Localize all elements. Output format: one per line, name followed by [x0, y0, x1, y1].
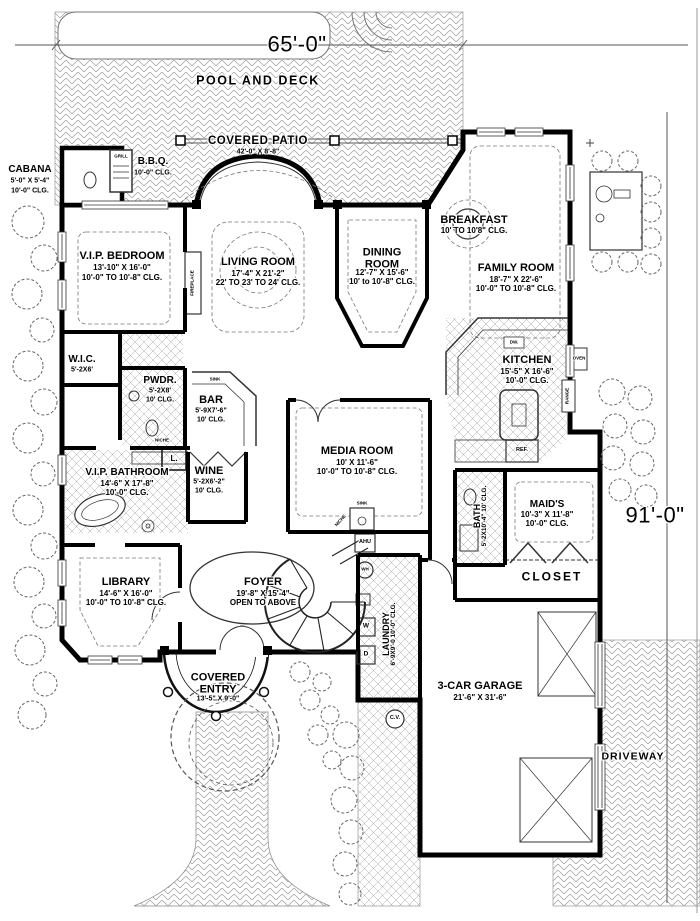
covered-entry-label: COVERED ENTRY — [186, 672, 250, 695]
entry-walk-hatch — [134, 700, 420, 906]
bath-label-group: BATH 5'-2X10'-4" 10' CLG. — [473, 486, 489, 547]
floor-plan-page: POOL AND DECK COVERED PATIO 42'-0" X 8'-… — [0, 0, 700, 921]
fireplace-label: FIREPLACE — [191, 270, 196, 296]
wic-dim: 5'-2X6' — [71, 366, 93, 373]
wic-label: W.I.C. — [68, 355, 95, 366]
garage-dim: 21'-6" X 31'-6" — [453, 694, 506, 702]
cabana-dim: 5'-0" X 5'-4" — [11, 177, 50, 184]
oven-label: OVEN — [573, 357, 586, 362]
cabana-label: CABANA — [8, 165, 51, 176]
covered-patio-label: COVERED PATIO — [208, 135, 308, 147]
vip-bathroom-clg: 10'-0" CLG. — [105, 489, 148, 497]
closet-label: CLOSET — [522, 571, 583, 584]
survey-mark — [586, 139, 594, 147]
dining-room-clg: 10' to 10'-8" CLG. — [349, 278, 415, 286]
grill-label: GRILL — [114, 155, 128, 160]
lot-depth-dimension: 91'-0" — [625, 503, 684, 526]
bbq-label: B.B.Q. — [138, 157, 169, 168]
media-room-clg: 10'-0" TO 10'-8" CLG. — [317, 468, 397, 476]
pool-deck-label: POOL AND DECK — [196, 74, 320, 87]
vip-bedroom-label: V.I.P. BEDROOM — [80, 251, 165, 263]
living-room-label: LIVING ROOM — [221, 257, 295, 269]
water-heater-label: WH — [361, 568, 369, 573]
maids-label: MAID'S — [530, 500, 565, 511]
wine-label: WINE — [195, 466, 224, 478]
bbq-clg: 10'-0" CLG. — [134, 169, 172, 176]
breakfast-clg: 10' TO 10'8" CLG. — [441, 227, 508, 235]
powder-label: PWDR. — [143, 376, 176, 387]
maids-clg: 10'-0" CLG. — [525, 520, 568, 528]
bar-sink-label: SINK — [210, 378, 221, 383]
driveway-label: DRIVEWAY — [601, 751, 664, 762]
library-clg: 10'-0" TO 10'-8" CLG. — [86, 599, 166, 607]
outdoor-dining-set — [590, 151, 661, 274]
cabana-clg: 10'-0" CLG. — [11, 187, 49, 194]
family-room-label: FAMILY ROOM — [478, 263, 554, 275]
dishwasher-label: DW. — [510, 341, 519, 346]
linen-label: L. — [170, 455, 177, 463]
fridge-label: REF. — [516, 448, 528, 454]
powder-dim: 5'-2X8' — [149, 387, 171, 394]
central-vac-label: C.V. — [390, 716, 400, 722]
covered-entry-dim: 13'-5" X 9'-0" — [197, 695, 240, 702]
niche-powder-label: NICHE — [155, 439, 169, 444]
wine-dim: 5'-2X6'-2" — [193, 478, 225, 485]
media-room-label: MEDIA ROOM — [321, 446, 393, 458]
bath-dim: 5'-2X10'-4" — [481, 514, 488, 547]
range-label: RANGE — [566, 388, 571, 404]
library-label: LIBRARY — [102, 577, 150, 589]
garage-label: 3-CAR GARAGE — [438, 681, 523, 693]
kitchen-clg: 10'-0" CLG. — [505, 377, 548, 385]
vip-bathroom-label: V.I.P. BATHROOM — [85, 468, 168, 479]
bath-clg: 10' CLG. — [481, 486, 488, 512]
powder-clg: 10' CLG. — [146, 396, 174, 403]
foyer-label: FOYER — [244, 577, 282, 589]
family-room-clg: 10'-0" TO 10'-8" CLG. — [476, 285, 556, 293]
vip-bedroom-clg: 10'-0" TO 10'-8" CLG. — [82, 274, 162, 282]
foyer-note: OPEN TO ABOVE — [230, 599, 296, 607]
lot-width-dimension: 65'-0" — [267, 32, 326, 55]
laundry-label-group: LAUNDRY 6'-9X9'-0 10'-0" CLG. — [382, 602, 398, 665]
bar-label: BAR — [199, 395, 223, 407]
covered-patio-dim: 42'-0" X 8'-8" — [237, 148, 280, 155]
wine-clg: 10' CLG. — [195, 487, 223, 494]
ahu-label: AHU — [359, 540, 371, 546]
bar-clg: 10' CLG. — [197, 416, 225, 423]
washer-label: W — [363, 624, 369, 631]
laundry-dim: 6'-9X9'-0 — [390, 639, 397, 665]
living-room-clg: 22' TO 23' TO 24' CLG. — [216, 279, 301, 287]
kitchen-label: KITCHEN — [503, 355, 552, 367]
dryer-label: D — [364, 652, 369, 659]
bar-dim: 5'-9X7'-6" — [195, 407, 227, 414]
laundry-clg: 10'-0" CLG. — [390, 602, 397, 637]
media-sink-label: SINK — [357, 502, 368, 507]
vip-bedroom-dim: 13'-10" X 16'-0" — [93, 264, 151, 272]
